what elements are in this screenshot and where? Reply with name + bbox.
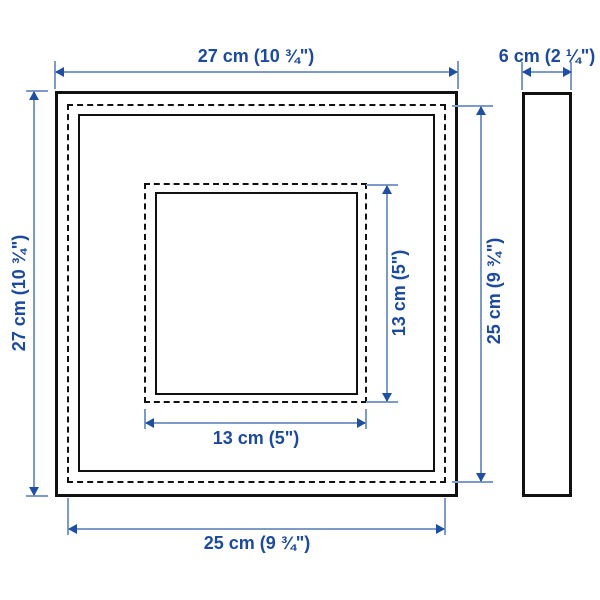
dim-back-width-label: 25 cm (9 ¾") [204, 533, 311, 553]
arrow-left-icon [145, 418, 154, 428]
frame-side-profile [522, 92, 572, 497]
arrow-left-icon [522, 67, 531, 77]
picture-opening-edge [155, 192, 358, 395]
arrow-left-icon [68, 524, 77, 534]
arrow-down-icon [382, 393, 392, 402]
arrow-right-icon [449, 67, 458, 77]
arrow-right-icon [436, 524, 445, 534]
arrow-right-icon [357, 418, 366, 428]
dim-picture-width-label: 13 cm (5") [213, 428, 300, 448]
arrow-up-icon [476, 106, 486, 115]
arrow-down-icon [29, 487, 39, 496]
dim-picture-height-label: 13 cm (5") [389, 250, 409, 337]
dim-outer-width-label: 27 cm (10 ¾") [198, 46, 315, 66]
arrow-up-icon [29, 91, 39, 100]
frame-dimension-diagram: 27 cm (10 ¾") 6 cm (2 ¼") 27 cm (10 ¾") … [0, 0, 600, 600]
dim-outer-height-label: 27 cm (10 ¾") [9, 235, 29, 352]
arrow-left-icon [55, 67, 64, 77]
dim-back-height-label: 25 cm (9 ¾") [484, 238, 504, 345]
arrow-down-icon [476, 473, 486, 482]
arrow-up-icon [382, 185, 392, 194]
arrow-right-icon [563, 67, 572, 77]
dim-depth-label: 6 cm (2 ¼") [499, 46, 596, 66]
